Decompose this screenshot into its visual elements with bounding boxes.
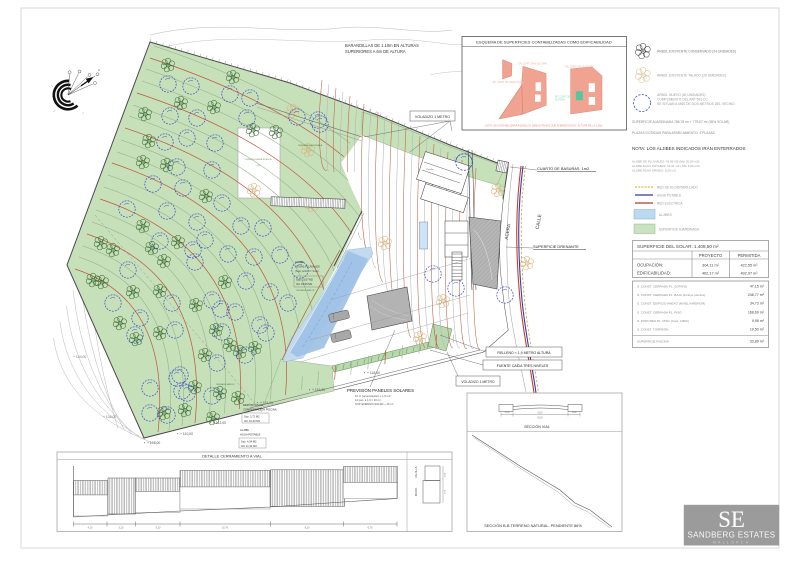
svg-text:422,55 m²: 422,55 m² [740,264,758,268]
svg-text:SP. CONT. 5% (ALTURA): SP. CONT. 5% (ALTURA) [565,66,593,69]
svg-text:Sup. 3,72 M2: Sup. 3,72 M2 [244,415,260,419]
svg-text:248,77 m²: 248,77 m² [748,293,765,297]
svg-text:Vol. 11,31 M3: Vol. 11,31 M3 [241,444,257,448]
svg-text:SUPERFICIE DRENANTE: SUPERFICIE DRENANTE [533,244,579,249]
svg-text:ALTURA: ALTURA [555,98,565,102]
svg-text:168,69 m²: 168,69 m² [748,310,765,314]
svg-text:+108: +108 [256,165,262,167]
svg-text:1,00: 1,00 [505,411,510,414]
svg-text:ALJIBE: ALJIBE [295,260,304,264]
svg-text:TERRAZA JARDIN: TERRAZA JARDIN [296,289,315,292]
svg-text:ALJIBES: ALJIBES [659,213,672,217]
svg-text:CUMPLIMENTO DEL ART 591 CC: CUMPLIMENTO DEL ART 591 CC [657,98,708,102]
svg-text:19,50 m²: 19,50 m² [750,328,765,332]
svg-text:AGUA POTABLE: AGUA POTABLE [240,433,261,437]
svg-text:SP. CONT. 50% (ALTURA: SP. CONT. 50% (ALTURA [518,63,547,66]
svg-text:6,00: 6,00 [538,412,543,415]
svg-text:CUARTO DE BASURAS. 1m2: CUARTO DE BASURAS. 1m2 [537,166,589,171]
svg-text:9,20: 9,20 [305,527,310,530]
svg-text:Vol. 16,40 M3: Vol. 16,40 M3 [244,419,260,423]
svg-text:10 U. (acumulación) + 1,5 m3: 10 U. (acumulación) + 1,5 m3 [355,394,391,398]
svg-text:PREVISIÓN PANELES SOLARES: PREVISIÓN PANELES SOLARES [347,388,414,393]
svg-text:(bajo jardín 1º Sala): (bajo jardín 1º Sala) [295,269,319,273]
svg-text:5,10: 5,10 [156,527,161,530]
svg-text:Sup. 21,07 M2: Sup. 21,07 M2 [296,278,313,282]
svg-text:N: N [98,69,100,72]
svg-text:ÁRBOL EXISTENTE TALADO (20 UNI: ÁRBOL EXISTENTE TALADO (20 UNIDADES) [657,74,726,78]
svg-text:+ 112,00: + 112,00 [213,421,226,425]
svg-text:SP. CONT. 5% (MAX) ALTURA: SP. CONT. 5% (MAX) ALTURA [493,81,528,84]
svg-text:TERRAZA JARDIN: TERRAZA JARDIN [216,383,235,386]
svg-text:SUPERFICIE DEL SOLAR: 1.408,50: SUPERFICIE DEL SOLAR: 1.408,50 m² [637,244,719,249]
svg-text:14 pan. a 1,6 × 10 m²: 14 pan. a 1,6 × 10 m² [355,398,381,402]
svg-text:Porche: Porche [427,168,435,171]
svg-text:492,97 m²: 492,97 m² [740,272,758,276]
svg-text:1,00: 1,00 [572,411,577,414]
svg-text:S. CONST. CERRADA PL. SÓTANO: S. CONST. CERRADA PL. SÓTANO [637,284,688,289]
svg-text:SUP. ENERGÍA SOLAR + 16 m²: SUP. ENERGÍA SOLAR + 16 m² [355,402,394,406]
svg-text:RED DE ALCANTARILLADO: RED DE ALCANTARILLADO [657,186,698,190]
svg-text:ÁRBOL NUEVO (40 UNIDADES): ÁRBOL NUEVO (40 UNIDADES) [657,93,705,97]
svg-text:4,10: 4,10 [88,527,93,530]
svg-text:8,00: 8,00 [538,417,543,420]
svg-text:Vol. 43,56 M3: Vol. 43,56 M3 [296,282,312,286]
svg-text:S. CONST. CERRADA PL. PISO: S. CONST. CERRADA PL. PISO [637,310,682,314]
svg-text:ESQUEMA DE SUPERFICIES CONTABI: ESQUEMA DE SUPERFICIES CONTABILIZADAS CO… [476,40,612,45]
svg-text:S. CONST. CERRADA PL. BAJA (in: S. CONST. CERRADA PL. BAJA (incluye pisc… [637,293,705,297]
svg-text:+ 118,00: + 118,00 [367,371,380,375]
svg-text:DETALLE CERRAMIENTO A VIAL: DETALLE CERRAMIENTO A VIAL [202,454,262,459]
svg-text:304,11 m²: 304,11 m² [702,264,720,268]
svg-text:+ 108,00: + 108,00 [147,441,160,445]
svg-text:TERRAZA AJARDINADA: TERRAZA AJARDINADA [298,144,323,147]
svg-text:VOLADIZO 1 METRO: VOLADIZO 1 METRO [461,380,495,384]
svg-text:SUPERIORES A 6m DE ALTURA: SUPERIORES A 6m DE ALTURA [345,49,406,54]
svg-text:ALJIBE: ALJIBE [240,428,249,432]
svg-text:SUPERFICIE PISCINA: SUPERFICIE PISCINA [637,340,670,344]
svg-text:+ 106,00: + 106,00 [103,415,116,419]
svg-text:S. CONST. EDIFICIO ANEXO (NIVE: S. CONST. EDIFICIO ANEXO (NIVEL INFERIOR… [637,302,705,306]
svg-text:ALJIBE DE PLUVIALES: 43,56 M3: ALJIBE DE PLUVIALES: 43,56 M3 (Min 20,00… [632,160,699,164]
svg-text:FUENTE CAÍDA TRES NIVELES: FUENTE CAÍDA TRES NIVELES [497,364,549,368]
svg-text:OCUPACIÓN:: OCUPACIÓN: [637,263,663,268]
svg-text:PLAZAS DOTADAS PARA APARCAMIEN: PLAZAS DOTADAS PARA APARCAMIENTO: 4 PLAZ… [632,131,716,135]
svg-text:462,17 m²: 462,17 m² [702,272,720,276]
svg-text:BARANDILLAS DE 1.10m EN ALTURA: BARANDILLAS DE 1.10m EN ALTURAS [345,43,419,48]
svg-text:Sup. 4,04 M2: Sup. 4,04 M2 [241,440,257,444]
svg-text:RED ELÉCTRICA: RED ELÉCTRICA [657,201,683,206]
svg-text:SUPERFICIE AJARDINADA: SUPERFICIE AJARDINADA [659,228,700,232]
svg-text:NOTA: SE CONTABILIZARÁ AQUELLO: NOTA: SE CONTABILIZARÁ AQUELLOS SEMISOTA… [485,125,603,128]
svg-text:33,89 m²: 33,89 m² [750,340,765,344]
svg-text:47,15 m²: 47,15 m² [750,285,765,289]
svg-text:VOLADIZO 1 METRO: VOLADIZO 1 METRO [415,115,450,119]
svg-text:ALJIBE AGUA POTABLE: 11,31 m3: ALJIBE AGUA POTABLE: 11,31 m3 ( Min 3,00… [632,164,700,168]
svg-text:AGUA POTABLE: AGUA POTABLE [657,194,681,198]
svg-text:SECCIÓN VIAL: SECCIÓN VIAL [524,424,550,429]
svg-text:SANDBERG ESTATES: SANDBERG ESTATES [688,531,776,540]
svg-text:ALJIBE AGUA GRISES: 5,00 m3: ALJIBE AGUA GRISES: 5,00 m3 [632,169,676,173]
svg-text:TERRAZA GRAVA BLANCA: TERRAZA GRAVA BLANCA [244,158,272,161]
svg-text:PERMITIDA: PERMITIDA [738,253,761,258]
svg-text:+ 116,00: + 116,00 [312,388,325,392]
svg-text:34,73 m²: 34,73 m² [750,302,765,306]
svg-text:10,70: 10,70 [222,527,229,530]
svg-text:EDIFICABILIDAD:: EDIFICABILIDAD: [637,271,671,276]
svg-text:SE: SE [718,507,745,532]
svg-text:ÁRBOL EXISTENTE CONSERVADO (24: ÁRBOL EXISTENTE CONSERVADO (24 UNIDADES) [657,50,736,54]
svg-text:+ 104,00: + 104,00 [73,355,86,359]
svg-text:S. PORCHES PL. PISO (Cont. 100: S. PORCHES PL. PISO (Cont. 100%) [637,319,689,323]
svg-text:MALLORCA: MALLORCA [713,541,750,545]
svg-text:3,20: 3,20 [119,527,124,530]
svg-text:+ 110,00: + 110,00 [180,432,193,436]
svg-text:NOTA: LOS ALJIBES INDICADOS IR: NOTA: LOS ALJIBES INDICADOS IRÁN ENTERRA… [632,145,745,151]
svg-text:MURO: MURO [414,487,418,496]
svg-text:AGUAS PLUVIALES: AGUAS PLUVIALES [295,265,320,269]
svg-text:SUPERFICIE AJARDINADA 786,78 m: SUPERFICIE AJARDINADA 786,78 m² + 779,67… [632,120,729,124]
svg-text:RELLENO < 1,9 METRO ALTURA: RELLENO < 1,9 METRO ALTURA [497,351,551,355]
svg-text:S. CONST. TORREÓN: S. CONST. TORREÓN [637,327,668,332]
svg-text:6,70: 6,70 [368,527,373,530]
svg-text:SE SITÚAN A MÁS DE DOS METROS: SE SITÚAN A MÁS DE DOS METROS DEL VECINO [657,102,735,106]
svg-text:9,98 m²: 9,98 m² [752,319,765,323]
svg-text:SECCIÓN B-B TERRENO NATURAL. P: SECCIÓN B-B TERRENO NATURAL. PENDIENTE 8… [484,523,582,528]
svg-text:REJILLA: REJILLA [414,466,418,477]
svg-text:PROYECTO: PROYECTO [699,253,723,258]
